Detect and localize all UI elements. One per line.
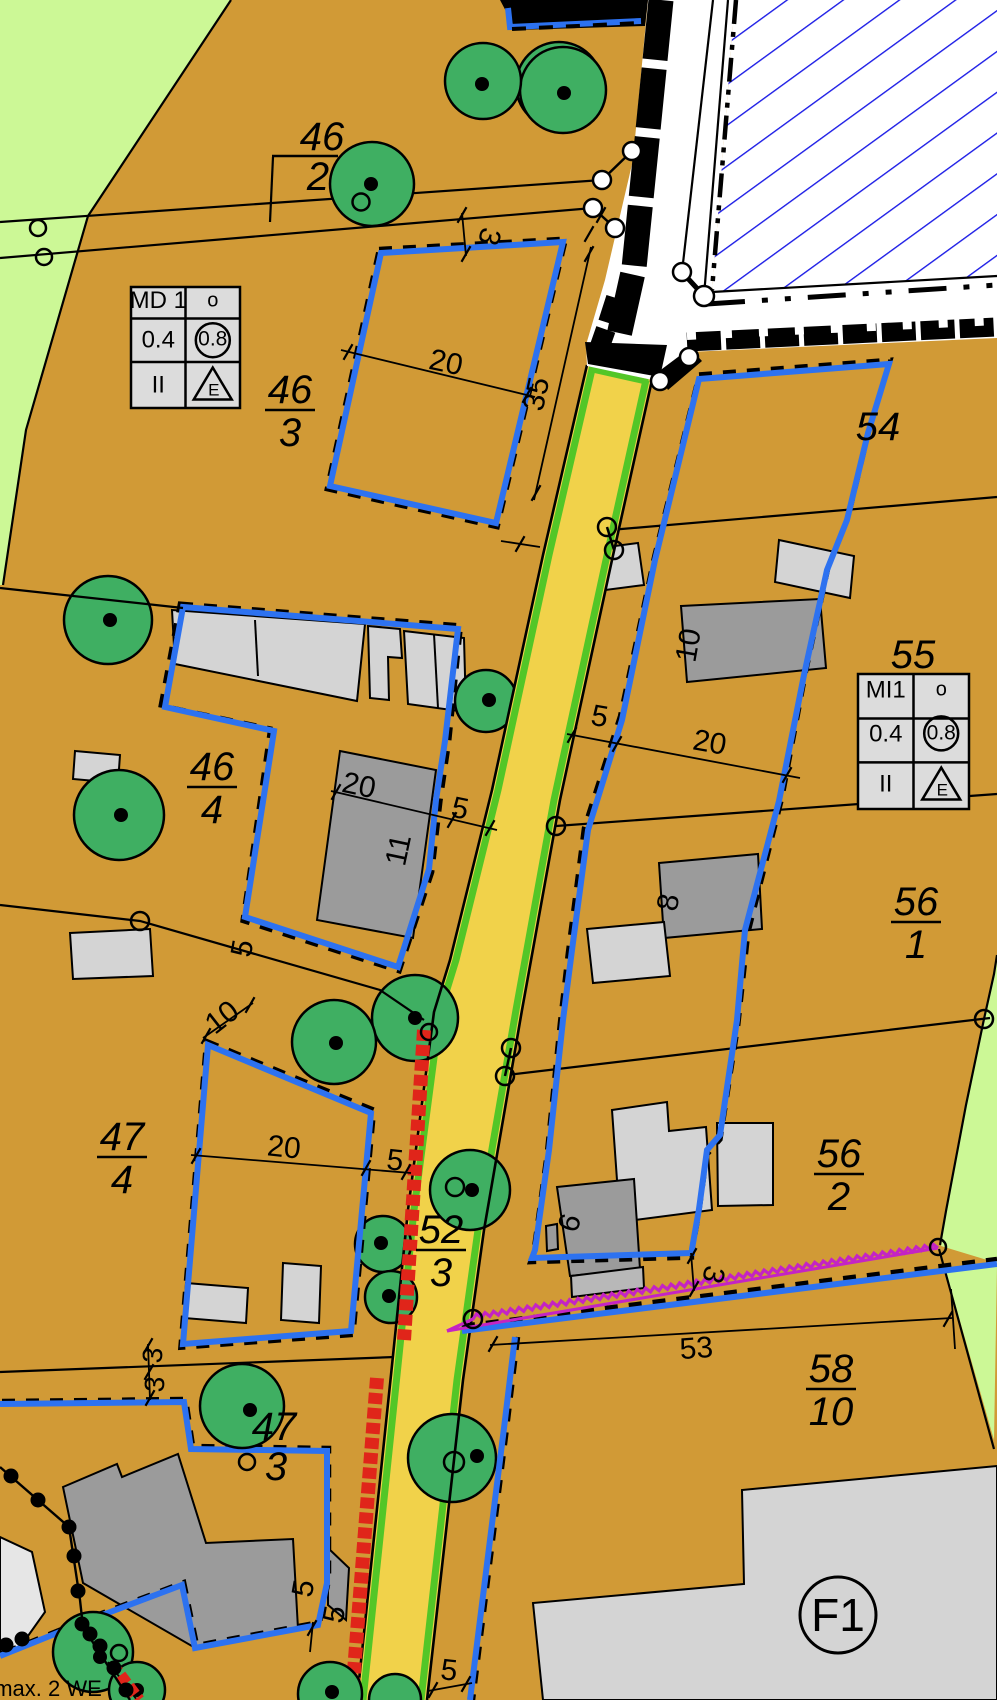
svg-text:20: 20	[339, 766, 379, 805]
svg-text:1: 1	[905, 923, 927, 967]
svg-text:3: 3	[136, 1346, 168, 1364]
svg-text:max. 2 WE: max. 2 WE	[0, 1676, 102, 1700]
svg-text:0.4: 0.4	[869, 721, 902, 748]
svg-text:F1: F1	[811, 1589, 865, 1641]
svg-text:58: 58	[809, 1347, 854, 1391]
svg-text:3: 3	[430, 1251, 452, 1295]
svg-text:35: 35	[517, 374, 556, 414]
svg-text:5: 5	[385, 1143, 405, 1178]
svg-text:3: 3	[265, 1445, 287, 1489]
svg-text:53: 53	[679, 1331, 715, 1366]
svg-text:o: o	[936, 679, 947, 701]
svg-text:2: 2	[306, 155, 329, 199]
svg-text:56: 56	[817, 1132, 862, 1176]
svg-text:2: 2	[827, 1175, 850, 1219]
svg-text:4: 4	[201, 788, 223, 832]
svg-text:46: 46	[268, 368, 313, 412]
svg-text:47: 47	[100, 1115, 146, 1159]
svg-text:46: 46	[190, 745, 235, 789]
svg-text:3: 3	[138, 1375, 170, 1393]
svg-text:55: 55	[891, 633, 936, 677]
svg-text:II: II	[152, 371, 165, 398]
svg-text:E: E	[937, 781, 948, 800]
svg-text:47: 47	[252, 1405, 298, 1449]
svg-text:MI1: MI1	[866, 677, 906, 704]
svg-text:20: 20	[426, 343, 466, 382]
svg-text:o: o	[207, 289, 218, 311]
svg-text:0.8: 0.8	[927, 721, 956, 744]
svg-text:E: E	[208, 381, 219, 400]
svg-text:MD 1: MD 1	[130, 287, 187, 314]
svg-text:46: 46	[300, 115, 345, 159]
svg-text:54: 54	[856, 405, 901, 449]
svg-text:52: 52	[419, 1208, 464, 1252]
svg-text:20: 20	[266, 1129, 303, 1165]
svg-text:5: 5	[439, 1653, 459, 1688]
svg-text:10: 10	[809, 1390, 854, 1434]
svg-text:3: 3	[279, 411, 301, 455]
svg-text:56: 56	[894, 880, 939, 924]
svg-text:II: II	[879, 770, 892, 797]
svg-text:0.4: 0.4	[142, 327, 175, 354]
svg-text:4: 4	[111, 1158, 133, 1202]
svg-text:10: 10	[669, 626, 707, 665]
svg-text:0.8: 0.8	[198, 328, 227, 351]
svg-text:20: 20	[690, 723, 729, 761]
